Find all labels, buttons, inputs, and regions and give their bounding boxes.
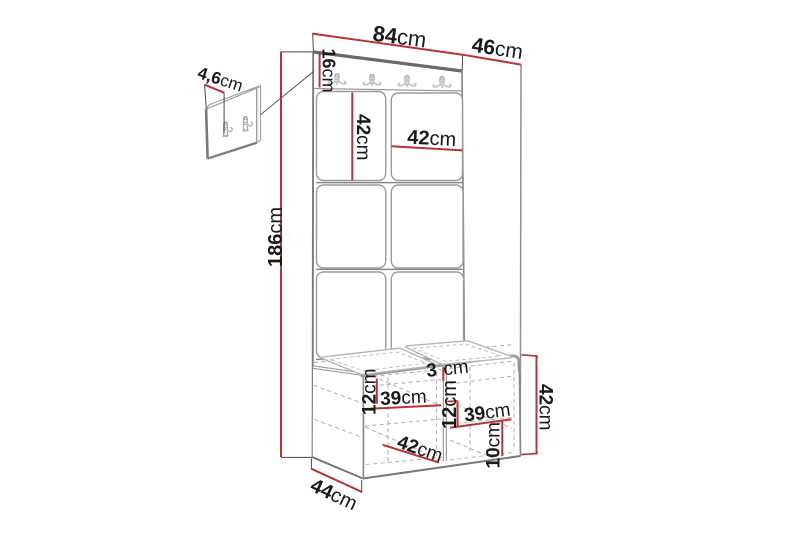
svg-text:16cm: 16cm (318, 49, 338, 93)
svg-text:39cm: 39cm (380, 387, 428, 410)
svg-text:186cm: 186cm (265, 207, 287, 267)
svg-text:42cm: 42cm (535, 384, 556, 430)
svg-text:42cm: 42cm (352, 114, 373, 160)
svg-text:3cm: 3cm (425, 357, 469, 382)
svg-text:12cm: 12cm (439, 380, 461, 429)
svg-text:42cm: 42cm (407, 127, 457, 152)
svg-text:12cm: 12cm (360, 369, 381, 415)
svg-text:10cm: 10cm (484, 422, 505, 468)
